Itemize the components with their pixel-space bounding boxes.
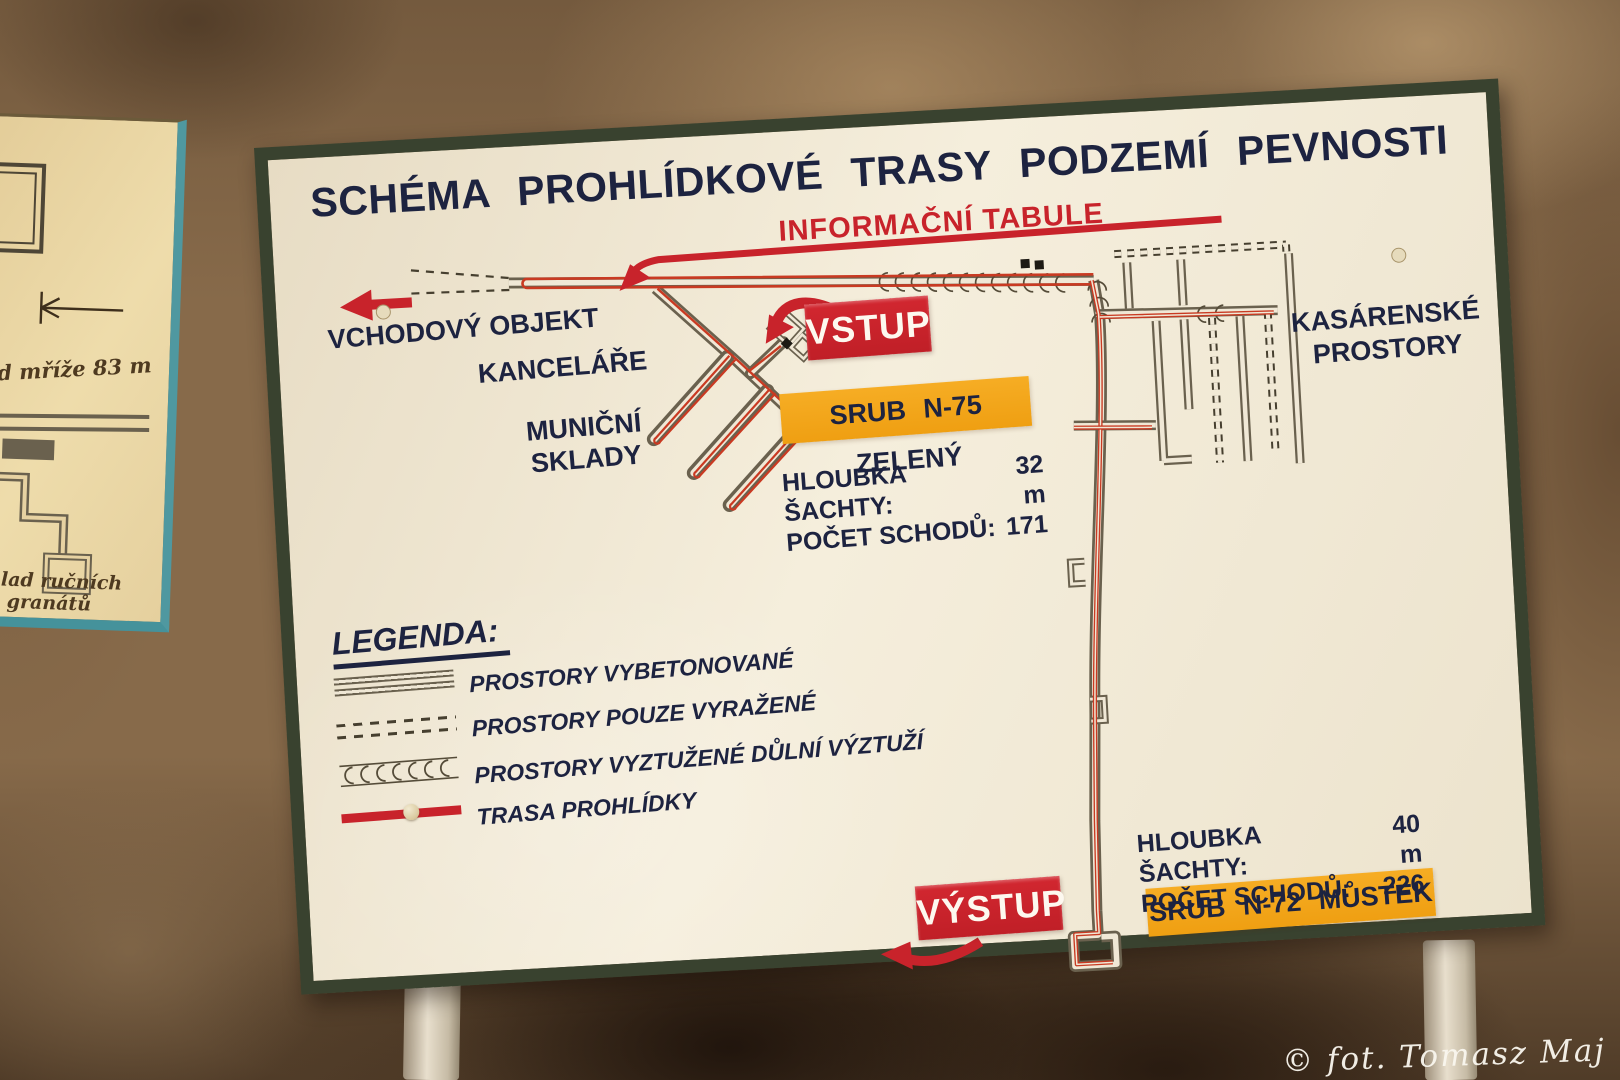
depth-value: 40 m — [1365, 809, 1424, 873]
steps-value: 226 — [1382, 868, 1426, 901]
shaft-n75-stats: HLOUBKA ŠACHTY: 32 m POČET SCHODŮ: 171 — [781, 449, 1049, 558]
west-arrow-icon — [339, 287, 413, 322]
corridor-double-line — [0, 413, 149, 432]
descent-corridor — [1037, 280, 1136, 966]
distance-note: od mříže 83 m — [0, 352, 152, 386]
wall-background: { "watermark": "© fot. Tomasz Maj", "mai… — [0, 0, 1620, 1080]
photographer-watermark: © fot. Tomasz Maj — [1282, 1032, 1607, 1079]
depth-value: 32 m — [992, 449, 1046, 513]
left-sign: od mříže 83 m sklad ručních granátů — [0, 112, 187, 632]
steps-value: 171 — [1005, 509, 1049, 542]
entry-badge: VSTUP — [804, 296, 932, 361]
main-sign: SCHÉMA PROHLÍDKOVÉ TRASY PODZEMÍ PEVNOST… — [254, 78, 1545, 994]
left-sign-frame-box — [0, 161, 46, 254]
exit-badge: VÝSTUP — [915, 876, 1064, 940]
ammo-depot-label: MUNIČNÍ SKLADY — [518, 406, 653, 480]
excavated-west-stub — [404, 264, 509, 296]
measure-arrow-icon — [10, 285, 132, 349]
exit-arrow-icon — [880, 938, 981, 972]
gallery-feature-marks — [1020, 258, 1044, 270]
